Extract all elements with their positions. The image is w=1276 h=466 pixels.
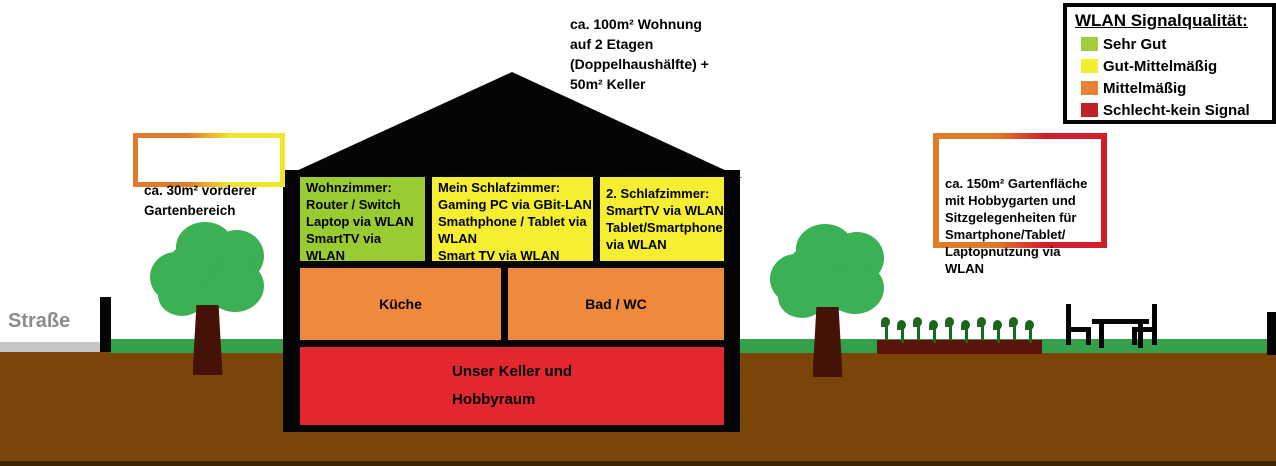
garden-sprout — [1008, 317, 1020, 340]
garden-sprouts — [877, 317, 1042, 341]
room-2-schlafzimmer-label: 2. Schlafzimmer: SmartTV via WLAN Tablet… — [600, 177, 724, 253]
room-kueche: Küche — [300, 268, 501, 340]
room-mein-schlafzimmer: Mein Schlafzimmer: Gaming PC via GBit-LA… — [432, 177, 593, 261]
garden-sprout — [976, 317, 988, 340]
house-size-note: ca. 100m² Wohnung auf 2 Etagen (Doppelha… — [570, 14, 709, 94]
legend-item: Gut-Mittelmäßig — [1081, 56, 1272, 76]
legend-item: Mittelmäßig — [1081, 78, 1272, 98]
garden-sprout — [928, 320, 940, 343]
back-garden-note: ca. 150m² Gartenfläche mit Hobbygarten u… — [933, 133, 1107, 248]
tree-canopy — [206, 260, 264, 312]
chair-right-leg — [1132, 327, 1137, 345]
street-label: Straße — [8, 310, 70, 333]
tree-trunk — [193, 305, 223, 375]
legend-swatch-gut-mittelmaessig — [1081, 59, 1098, 73]
legend-label: Mittelmäßig — [1103, 80, 1186, 97]
street-road — [0, 342, 100, 352]
soil-bottom-edge — [0, 461, 1276, 466]
fence-post-right — [1267, 312, 1276, 355]
room-wohnzimmer: Wohnzimmer: Router / Switch Laptop via W… — [300, 177, 425, 261]
legend-label: Sehr Gut — [1103, 36, 1166, 53]
room-bad-wc-label: Bad / WC — [585, 296, 646, 313]
legend-label: Schlecht-kein Signal — [1103, 102, 1250, 119]
garden-sprout — [960, 320, 972, 343]
room-2-schlafzimmer: 2. Schlafzimmer: SmartTV via WLAN Tablet… — [600, 177, 724, 261]
room-wohnzimmer-label: Wohnzimmer: Router / Switch Laptop via W… — [300, 177, 425, 264]
chair-right-back — [1152, 304, 1157, 345]
room-keller: Unser Keller und Hobbyraum — [300, 347, 724, 425]
front-garden-note-text: ca. 30m² vorderer Gartenbereich — [144, 181, 277, 221]
legend-swatch-mittelmaessig — [1081, 81, 1098, 95]
legend-item: Schlecht-kein Signal — [1081, 100, 1272, 120]
room-bad-wc: Bad / WC — [508, 268, 724, 340]
legend-label: Gut-Mittelmäßig — [1103, 58, 1217, 75]
room-mein-schlafzimmer-label: Mein Schlafzimmer: Gaming PC via GBit-LA… — [432, 177, 593, 264]
garden-sprout — [880, 317, 892, 340]
room-keller-label: Unser Keller und Hobbyraum — [452, 358, 572, 414]
tree-right — [770, 224, 885, 357]
garden-table-leg — [1138, 319, 1143, 348]
legend-title: WLAN Signalqualität: — [1075, 11, 1268, 31]
wlan-house-diagram: Straße Wohnzimmer: Router / Swi — [0, 0, 1276, 466]
garden-sprout — [896, 320, 908, 343]
garden-sprout — [944, 317, 956, 340]
tree-canopy — [826, 262, 884, 314]
front-garden-note: ca. 30m² vorderer Gartenbereich — [133, 133, 285, 187]
back-garden-note-text: ca. 150m² Gartenfläche mit Hobbygarten u… — [945, 175, 1098, 277]
legend-item: Sehr Gut — [1081, 34, 1272, 54]
garden-sprout — [912, 317, 924, 340]
garden-sprout — [992, 320, 1004, 343]
legend-swatch-sehr-gut — [1081, 37, 1098, 51]
room-kueche-label: Küche — [379, 296, 422, 313]
chair-left-leg — [1086, 327, 1091, 345]
garden-sprout — [1024, 320, 1036, 343]
garden-table-leg — [1099, 319, 1104, 348]
tree-trunk — [813, 307, 843, 377]
fence-post-left — [100, 297, 111, 352]
legend: WLAN Signalqualität: Sehr Gut Gut-Mittel… — [1063, 3, 1276, 124]
legend-swatch-schlecht — [1081, 103, 1098, 117]
